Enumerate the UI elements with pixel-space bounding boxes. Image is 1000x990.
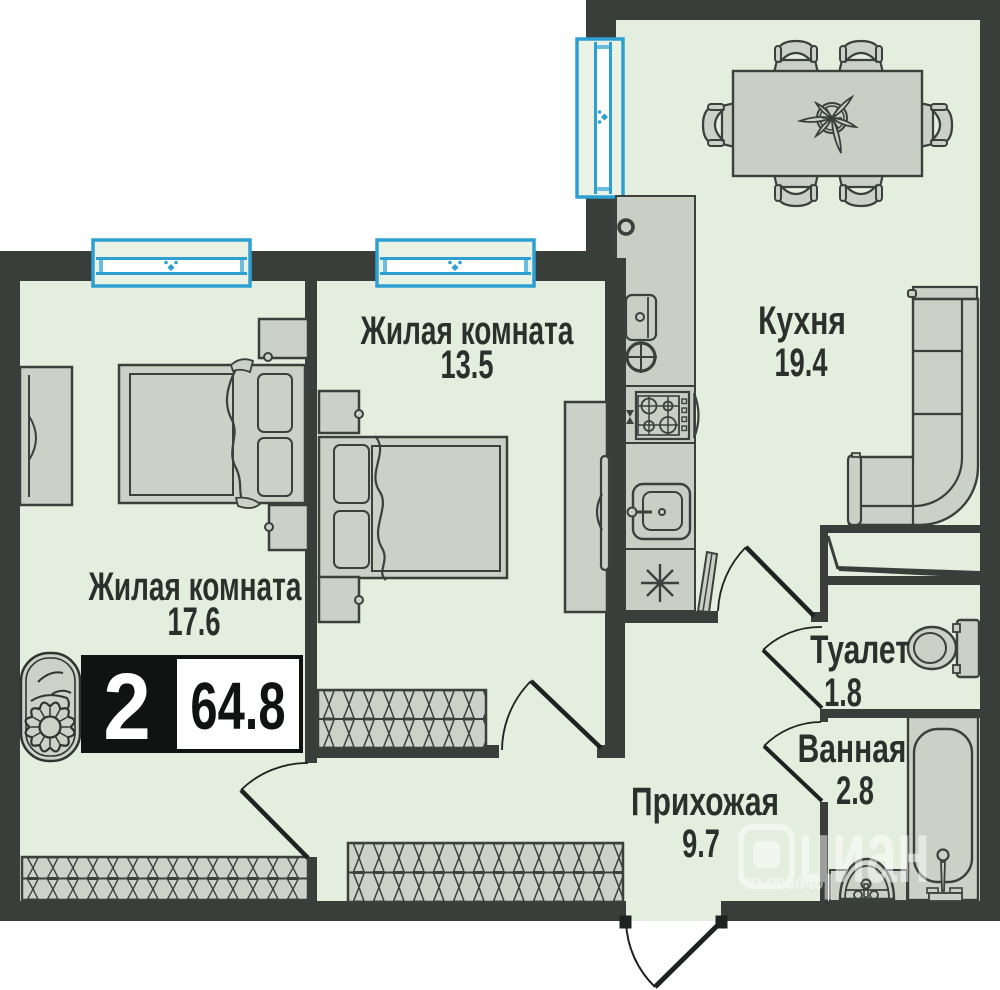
svg-text:Кухня: Кухня xyxy=(758,299,846,343)
svg-text:1.8: 1.8 xyxy=(824,671,862,715)
svg-text:ID 993040: ID 993040 xyxy=(745,874,823,893)
svg-text:19.4: 19.4 xyxy=(775,341,828,385)
svg-text:Туалет: Туалет xyxy=(810,628,910,672)
svg-text:64.8: 64.8 xyxy=(190,670,285,744)
svg-text:2: 2 xyxy=(103,654,151,760)
svg-text:Ванная: Ванная xyxy=(798,727,907,771)
svg-text:17.6: 17.6 xyxy=(168,600,221,644)
svg-text:Прихожая: Прихожая xyxy=(631,780,779,824)
svg-text:13.5: 13.5 xyxy=(441,343,494,387)
svg-text:9.7: 9.7 xyxy=(682,822,720,866)
